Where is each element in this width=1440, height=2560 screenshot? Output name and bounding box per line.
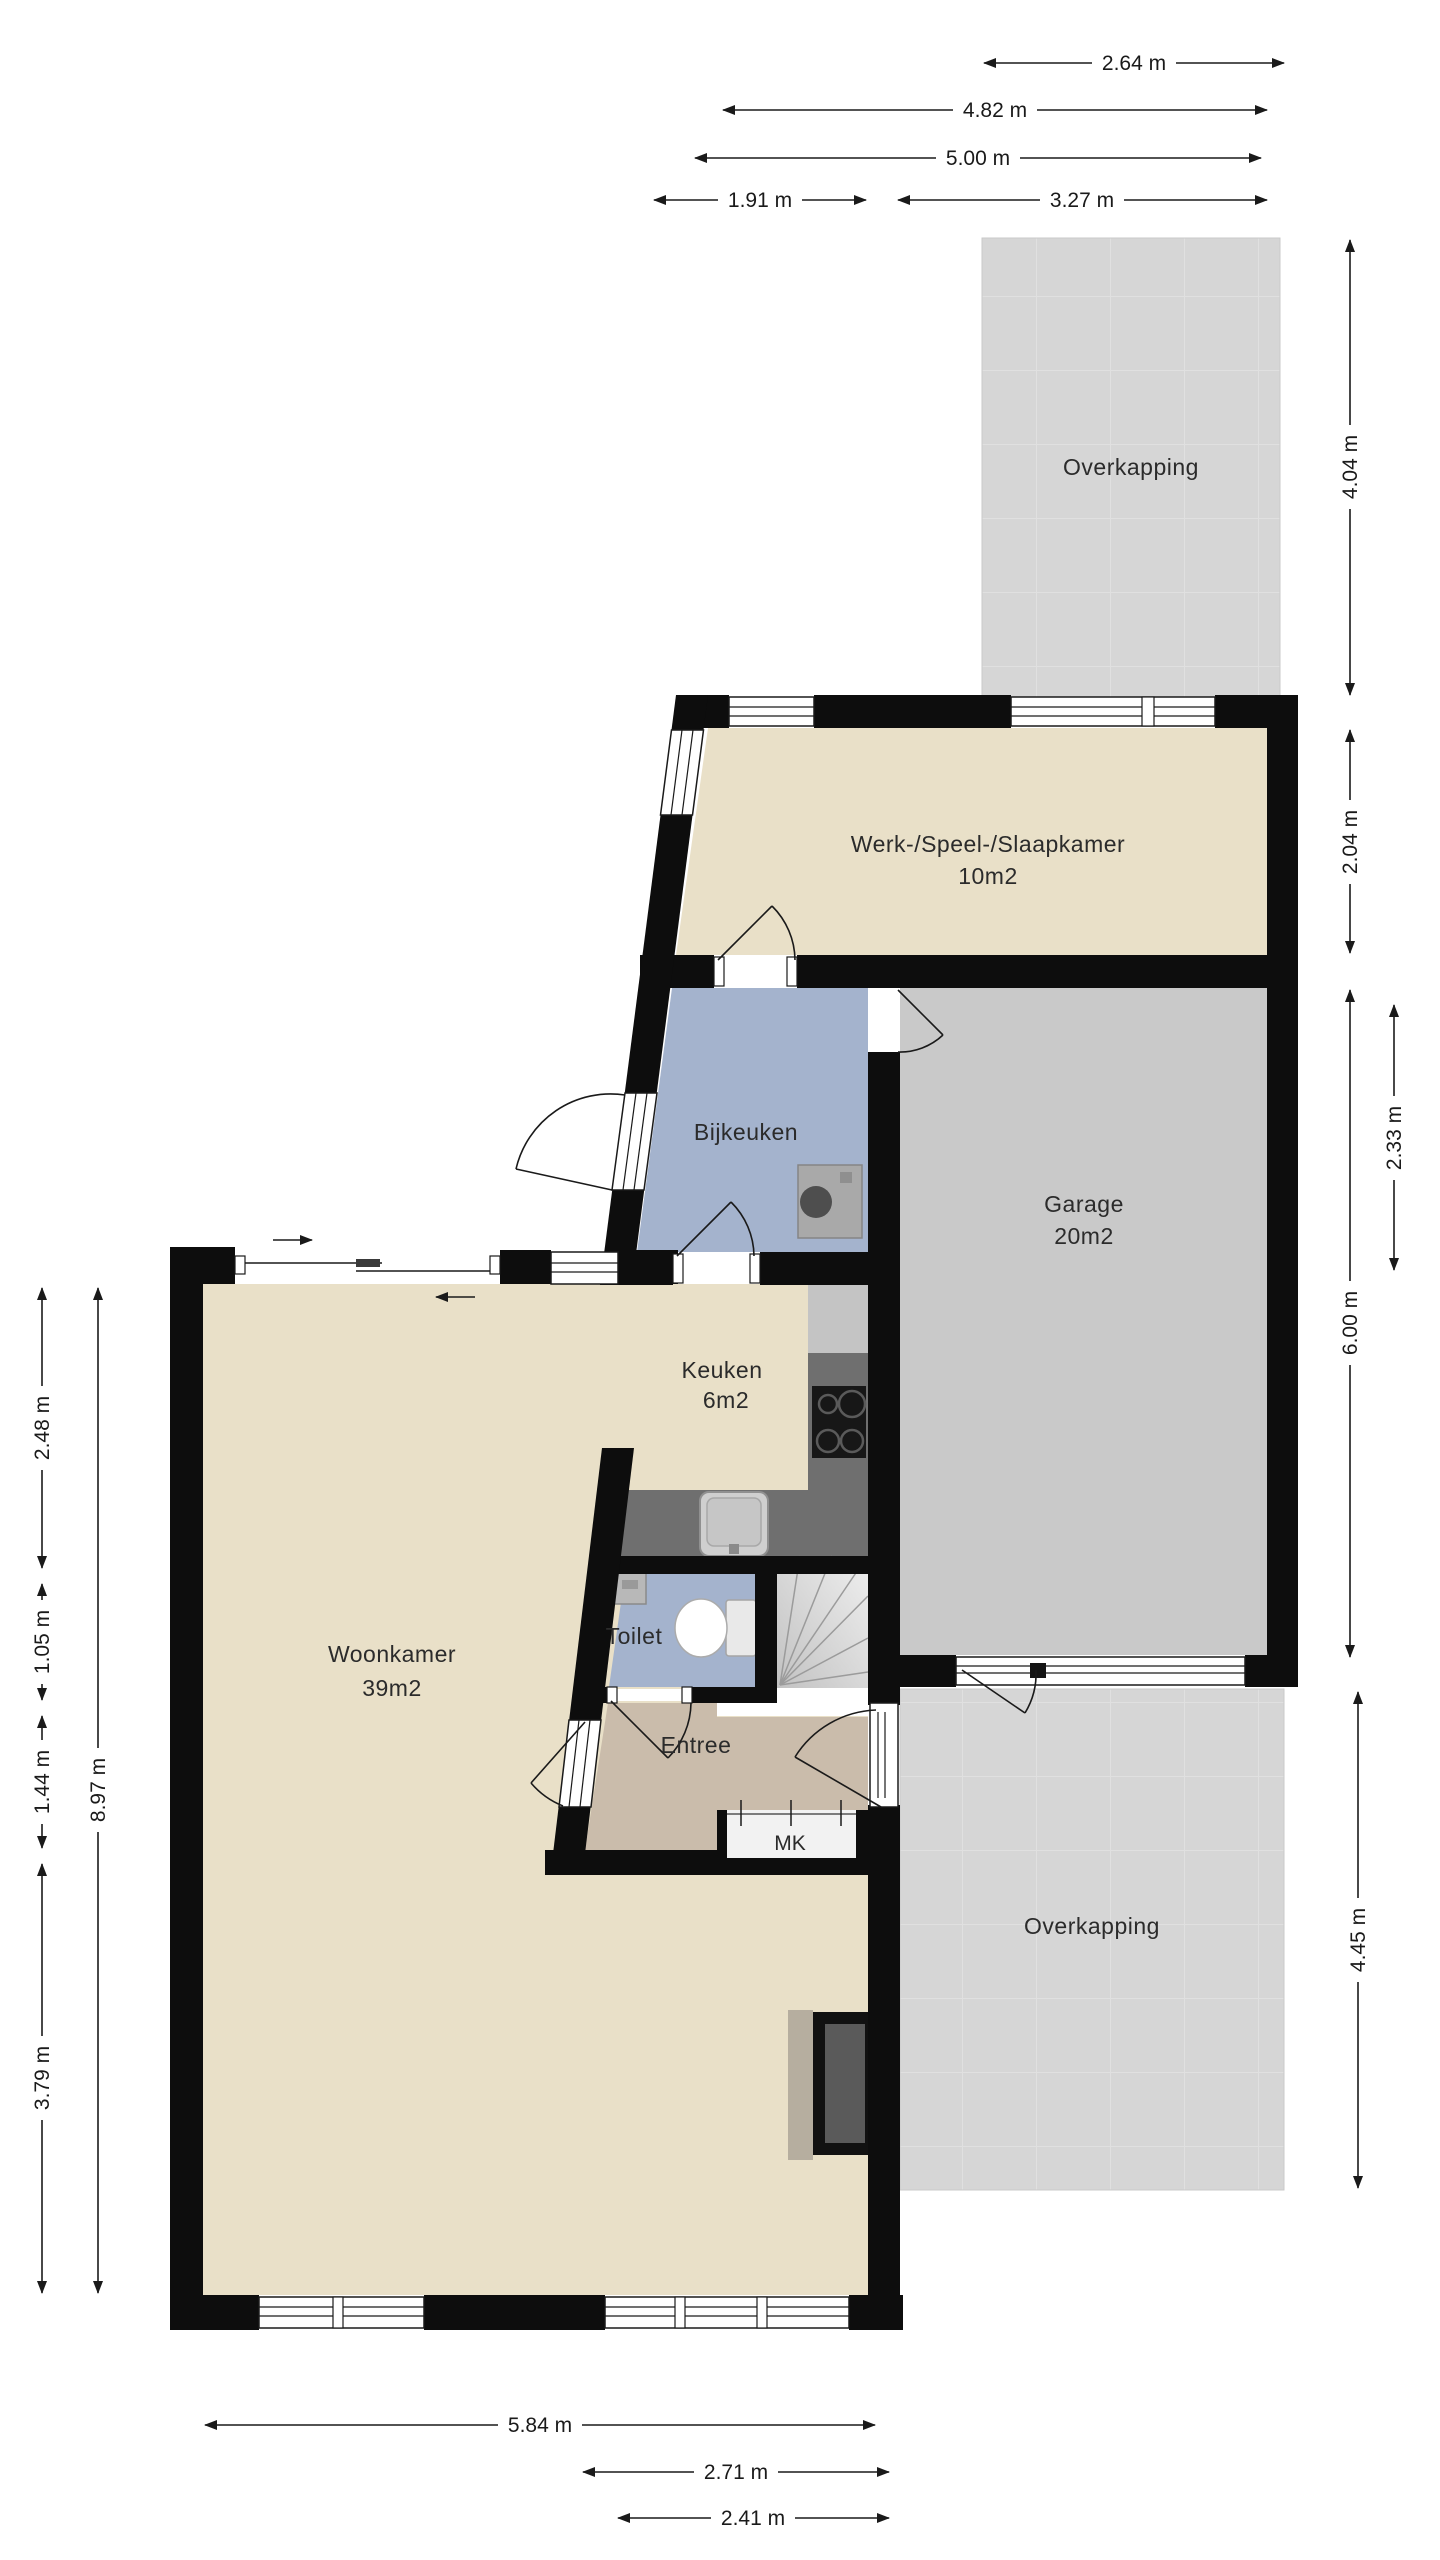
floor-garage — [900, 988, 1267, 1655]
dim-right-3: 6.00 m — [1339, 1291, 1362, 1355]
dim-top-4: 1.91 m — [728, 189, 792, 212]
dim-left-4: 3.79 m — [31, 2046, 54, 2110]
label-keuken: Keuken — [681, 1357, 762, 1383]
label-garage: Garage — [1044, 1191, 1124, 1217]
wc-tank — [726, 1600, 756, 1656]
dim-top-3: 5.00 m — [946, 147, 1010, 170]
label-overkapping-top: Overkapping — [1063, 454, 1199, 480]
label-werk-area: 10m2 — [958, 863, 1018, 889]
washing-machine-door-icon — [800, 1186, 832, 1218]
washing-machine-panel — [840, 1172, 852, 1183]
dim-top-5: 3.27 m — [1050, 189, 1114, 212]
dim-top-1: 2.64 m — [1102, 52, 1166, 75]
window — [605, 2297, 849, 2328]
wall — [170, 1247, 203, 2330]
window-slanted — [661, 730, 704, 815]
dim-right-1: 4.04 m — [1339, 435, 1362, 499]
faucet-icon — [729, 1544, 739, 1554]
wall — [760, 1252, 868, 1285]
dim-right-5: 4.45 m — [1347, 1908, 1370, 1972]
wall — [868, 955, 900, 988]
dim-top-2: 4.82 m — [963, 99, 1027, 122]
fireplace — [788, 2010, 868, 2160]
door-bijkeuken-exterior — [516, 1093, 657, 1190]
wall — [170, 2295, 259, 2330]
wall — [592, 1556, 868, 1574]
wall — [868, 1052, 900, 1655]
window — [729, 697, 814, 726]
label-bijkeuken: Bijkeuken — [694, 1119, 798, 1145]
dim-left-1: 2.48 m — [31, 1396, 54, 1460]
wall — [500, 1250, 551, 1284]
wall — [868, 1655, 956, 1687]
faucet-icon — [622, 1580, 638, 1589]
fireplace-backing — [788, 2010, 813, 2160]
overkapping-bottom-floor — [900, 1689, 1284, 2190]
dim-left-3: 1.44 m — [31, 1750, 54, 1814]
kitchen-cabinet — [808, 1280, 868, 1353]
dim-bottom-1: 5.84 m — [508, 2414, 572, 2437]
wall — [849, 2295, 903, 2330]
garage-door-handle — [1030, 1663, 1046, 1678]
floor-plan-page: Overkapping Werk-/Speel-/Slaapkamer 10m2… — [0, 0, 1440, 2560]
label-woonkamer: Woonkamer — [328, 1641, 456, 1667]
wall — [868, 1805, 900, 2330]
wall — [618, 1250, 678, 1284]
wall — [1245, 1655, 1298, 1687]
wall — [1267, 695, 1298, 1687]
dim-bottom-3: 2.41 m — [721, 2507, 785, 2530]
wc-bowl — [675, 1599, 727, 1657]
window — [1011, 697, 1215, 726]
label-garage-area: 20m2 — [1054, 1223, 1114, 1249]
floor-plan: Overkapping Werk-/Speel-/Slaapkamer 10m2… — [0, 0, 1440, 2560]
label-toilet: Toilet — [606, 1623, 663, 1649]
label-werk-speel-slaapkamer: Werk-/Speel-/Slaapkamer — [851, 831, 1125, 857]
wall — [545, 1850, 727, 1875]
sliding-door-handle — [356, 1259, 380, 1267]
bijkeuken-fixtures — [798, 1165, 862, 1238]
wall-stair-partition — [755, 1556, 777, 1703]
dim-left-5: 8.97 m — [87, 1758, 110, 1822]
label-keuken-area: 6m2 — [703, 1387, 749, 1413]
dim-right-2: 2.04 m — [1339, 810, 1362, 874]
window — [259, 2297, 424, 2328]
label-overkapping-bottom: Overkapping — [1024, 1913, 1160, 1939]
wall — [424, 2295, 605, 2330]
wall — [692, 1687, 777, 1703]
window — [551, 1252, 618, 1284]
fireplace-opening — [825, 2024, 865, 2143]
label-entree: Entree — [661, 1732, 732, 1758]
overkapping-bottom-area — [900, 1689, 1284, 2190]
wall — [814, 695, 1011, 728]
dim-left-2: 1.05 m — [31, 1610, 54, 1674]
label-mk: MK — [774, 1832, 806, 1855]
label-woonkamer-area: 39m2 — [362, 1675, 422, 1701]
kitchen-sink-basin — [707, 1498, 761, 1546]
dim-right-4: 2.33 m — [1383, 1106, 1406, 1170]
dim-bottom-2: 2.71 m — [704, 2461, 768, 2484]
